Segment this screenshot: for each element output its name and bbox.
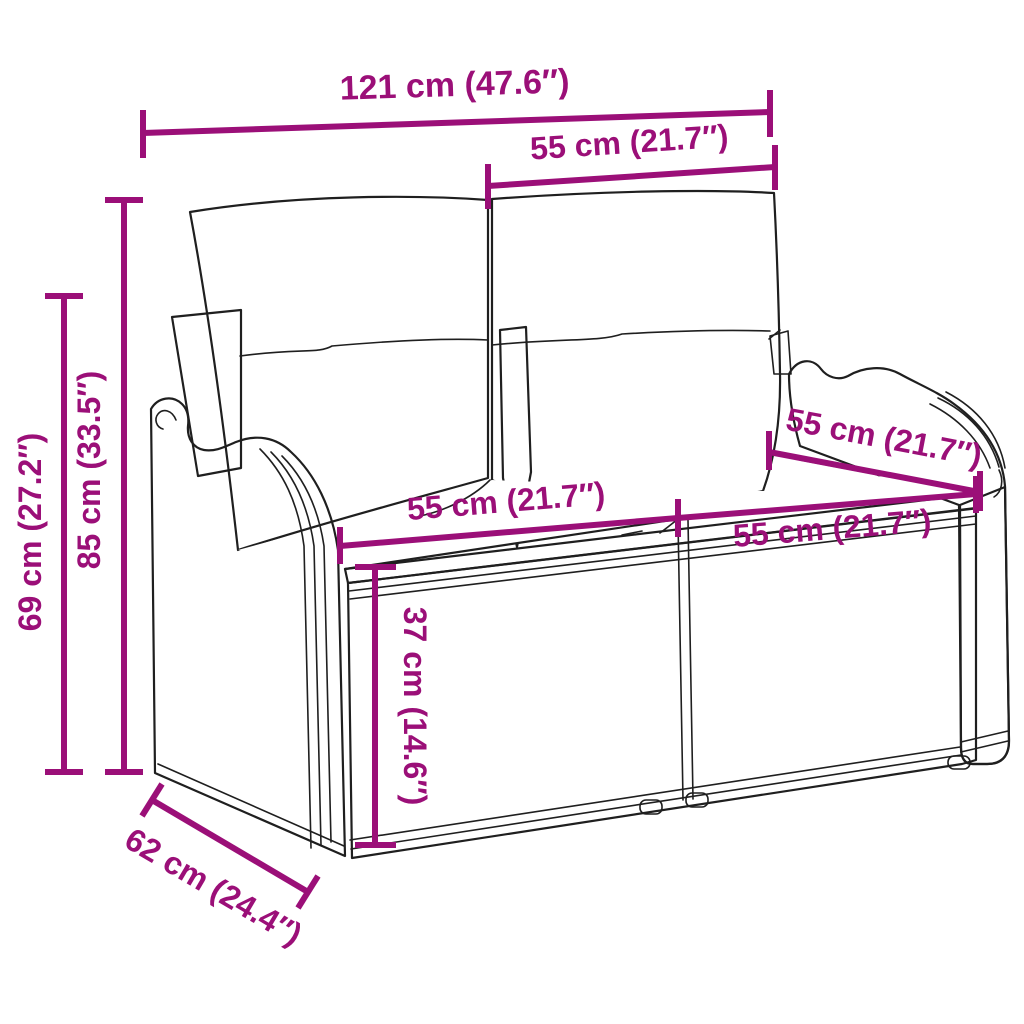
- dim-line: [488, 167, 775, 186]
- dim-seat-height: 37 cm (14.6″): [355, 567, 433, 845]
- dim-tick: [142, 784, 162, 816]
- right-corner-band: [960, 487, 1009, 764]
- dim-overall-height: 85 cm (33.5″): [71, 200, 143, 772]
- dim-overall-depth-label: 62 cm (24.4″): [119, 821, 308, 953]
- left-armrest: [151, 398, 345, 856]
- back-cushion-left-crease: [240, 339, 488, 356]
- dim-overall-height-label: 85 cm (33.5″): [71, 371, 107, 570]
- back-cushion-right: [492, 191, 780, 506]
- product-dimension-diagram: 121 cm (47.6″) 55 cm (21.7″) 85 cm (33.5…: [0, 0, 1024, 1024]
- back-cushion-right-crease: [492, 330, 770, 345]
- dim-seat-height-label: 37 cm (14.6″): [397, 607, 433, 806]
- right-corner-band-rail: [961, 731, 1008, 752]
- dim-overall-depth: 62 cm (24.4″): [119, 784, 318, 952]
- left-armrest-scroll: [156, 411, 344, 848]
- base-bottom-rail: [350, 747, 961, 849]
- dimension-annotations: 121 cm (47.6″) 55 cm (21.7″) 85 cm (33.5…: [12, 62, 985, 952]
- dimension-diagram-page: 121 cm (47.6″) 55 cm (21.7″) 85 cm (33.5…: [0, 0, 1024, 1024]
- base-middle-seam: [678, 520, 693, 800]
- dim-backrest-width-label: 55 cm (21.7″): [529, 117, 729, 166]
- dim-tick: [298, 876, 318, 908]
- dim-overall-width-label: 121 cm (47.6″): [339, 62, 570, 108]
- dim-armrest-height-label: 69 cm (27.2″): [12, 433, 48, 632]
